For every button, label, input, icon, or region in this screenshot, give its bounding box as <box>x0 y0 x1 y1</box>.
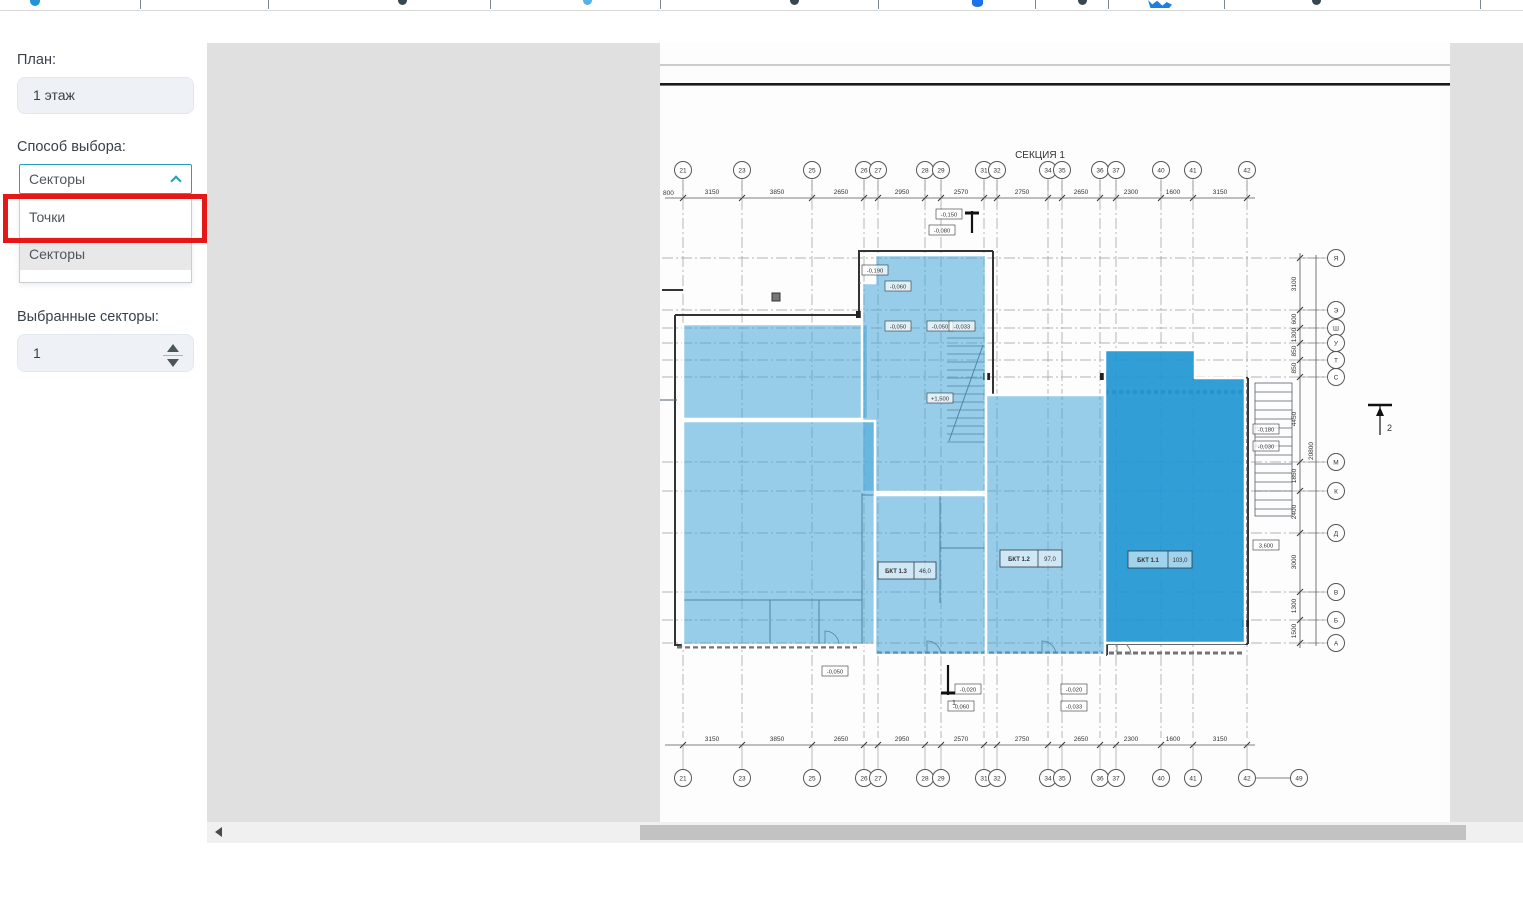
svg-text:41: 41 <box>1189 775 1197 782</box>
svg-text:2750: 2750 <box>1015 189 1030 196</box>
top-toolbar <box>0 0 1523 11</box>
selection-method-dropdown: ТочкиСекторы <box>19 196 192 283</box>
stepper-down-icon[interactable] <box>167 359 179 367</box>
svg-text:25: 25 <box>808 775 816 782</box>
svg-text:-0,050: -0,050 <box>827 670 843 676</box>
svg-text:2300: 2300 <box>1124 189 1139 196</box>
svg-text:-0,150: -0,150 <box>941 213 957 219</box>
svg-text:32: 32 <box>993 775 1001 782</box>
toolbar-separator <box>140 0 141 9</box>
toolbar-icon-fragment[interactable] <box>1148 0 1172 8</box>
svg-text:2650: 2650 <box>834 736 849 743</box>
svg-text:2750: 2750 <box>1015 736 1030 743</box>
svg-text:1: 1 <box>952 700 956 707</box>
svg-text:А: А <box>1334 640 1339 647</box>
svg-text:2300: 2300 <box>1124 736 1139 743</box>
svg-text:1500: 1500 <box>1291 623 1298 638</box>
selected-sectors-label: Выбранные секторы: <box>17 309 159 325</box>
svg-text:31: 31 <box>980 167 988 174</box>
horizontal-scrollbar[interactable] <box>207 822 1523 843</box>
svg-text:Д: Д <box>1334 530 1339 537</box>
svg-text:21: 21 <box>679 167 687 174</box>
svg-text:Б: Б <box>1334 617 1338 624</box>
svg-text:БКТ 1.3: БКТ 1.3 <box>885 569 907 575</box>
svg-text:25: 25 <box>808 167 816 174</box>
svg-text:2950: 2950 <box>895 736 910 743</box>
svg-text:-0,050: -0,050 <box>890 325 906 331</box>
svg-text:3,600: 3,600 <box>1259 544 1274 550</box>
toolbar-icon-fragment[interactable] <box>1312 0 1321 5</box>
svg-text:БКТ 1.2: БКТ 1.2 <box>1008 557 1030 563</box>
plan-viewport[interactable]: 3150385026502950257027502650230016003150… <box>207 43 1523 843</box>
svg-text:3150: 3150 <box>705 189 720 196</box>
dropdown-option-2[interactable]: Секторы <box>20 237 191 270</box>
svg-text:49: 49 <box>1295 775 1303 782</box>
svg-text:3850: 3850 <box>770 736 785 743</box>
svg-text:2650: 2650 <box>834 189 849 196</box>
svg-text:40: 40 <box>1157 775 1165 782</box>
svg-text:3150: 3150 <box>1213 736 1228 743</box>
svg-text:35: 35 <box>1058 167 1066 174</box>
svg-text:31: 31 <box>980 775 988 782</box>
svg-text:1600: 1600 <box>1166 736 1181 743</box>
svg-text:Т: Т <box>1334 357 1338 364</box>
svg-text:1300: 1300 <box>1291 327 1298 342</box>
selection-method-value: Секторы <box>29 171 85 187</box>
svg-text:850: 850 <box>1291 345 1298 356</box>
svg-text:35: 35 <box>1058 775 1066 782</box>
toolbar-icon-fragment[interactable] <box>398 0 407 5</box>
svg-text:-0,030: -0,030 <box>1258 445 1274 451</box>
svg-text:3150: 3150 <box>1213 189 1228 196</box>
svg-text:-0,180: -0,180 <box>1258 428 1274 434</box>
floor-plan-svg: 3150385026502950257027502650230016003150… <box>207 43 1523 822</box>
svg-text:-0,190: -0,190 <box>867 269 883 275</box>
svg-text:2570: 2570 <box>954 189 969 196</box>
svg-text:3850: 3850 <box>770 189 785 196</box>
svg-text:42: 42 <box>1243 775 1251 782</box>
scrollbar-thumb[interactable] <box>640 825 1466 840</box>
svg-text:41: 41 <box>1189 167 1197 174</box>
svg-text:34: 34 <box>1044 167 1052 174</box>
svg-text:-0,080: -0,080 <box>934 229 950 235</box>
sector-upper-left[interactable] <box>683 324 868 419</box>
svg-text:103,0: 103,0 <box>1172 558 1188 564</box>
sidebar: План: 1 этаж Способ выбора: Секторы Точк… <box>0 11 207 871</box>
svg-text:3000: 3000 <box>1291 554 1298 569</box>
toolbar-icon-fragment[interactable] <box>30 0 40 6</box>
toolbar-separator <box>660 0 661 9</box>
svg-text:42: 42 <box>1243 167 1251 174</box>
svg-text:4450: 4450 <box>1291 411 1298 426</box>
svg-text:2: 2 <box>1387 423 1392 433</box>
scrollbar-left-arrow-icon[interactable] <box>215 827 222 837</box>
svg-text:2650: 2650 <box>1074 189 1089 196</box>
svg-text:3100: 3100 <box>1291 276 1298 291</box>
plan-label: План: <box>17 52 56 68</box>
svg-text:-0,020: -0,020 <box>960 688 976 694</box>
svg-text:БКТ 1.1: БКТ 1.1 <box>1137 558 1159 564</box>
svg-text:29: 29 <box>937 167 945 174</box>
svg-text:26: 26 <box>860 775 868 782</box>
svg-text:-0,060: -0,060 <box>890 285 906 291</box>
toolbar-separator <box>1035 0 1036 9</box>
svg-text:2570: 2570 <box>954 736 969 743</box>
svg-text:37: 37 <box>1112 167 1120 174</box>
svg-text:2950: 2950 <box>895 189 910 196</box>
stepper-divider <box>163 355 183 356</box>
svg-text:28: 28 <box>921 167 929 174</box>
sector-center-right[interactable] <box>986 395 1105 655</box>
svg-text:26: 26 <box>860 167 868 174</box>
sector-right-selected[interactable] <box>1105 350 1245 643</box>
section-title: СЕКЦИЯ 1 <box>1015 150 1065 161</box>
svg-text:27: 27 <box>874 775 882 782</box>
svg-text:32: 32 <box>993 167 1001 174</box>
svg-text:1850: 1850 <box>1291 468 1298 483</box>
selection-method-select[interactable]: Секторы <box>19 164 192 194</box>
svg-text:+1,500: +1,500 <box>931 397 949 403</box>
toolbar-separator <box>490 0 491 9</box>
svg-text:97,0: 97,0 <box>1044 557 1056 563</box>
selection-method-label: Способ выбора: <box>17 139 126 155</box>
chevron-up-icon <box>170 175 181 186</box>
svg-text:29: 29 <box>937 775 945 782</box>
svg-text:2650: 2650 <box>1074 736 1089 743</box>
toolbar-separator <box>1224 0 1225 9</box>
toolbar-icon-fragment[interactable] <box>790 0 799 5</box>
svg-text:1300: 1300 <box>1291 598 1298 613</box>
sector-lower-left[interactable] <box>683 421 875 645</box>
toolbar-separator <box>1108 0 1109 9</box>
svg-text:23: 23 <box>738 167 746 174</box>
svg-text:3150: 3150 <box>705 736 720 743</box>
svg-text:28: 28 <box>921 775 929 782</box>
svg-text:20800: 20800 <box>1308 442 1315 460</box>
number-stepper <box>155 335 185 373</box>
svg-text:К: К <box>1334 488 1338 495</box>
toolbar-separator <box>878 0 879 9</box>
svg-text:В: В <box>1334 589 1338 596</box>
selected-sectors-value: 1 <box>33 345 41 361</box>
svg-text:1600: 1600 <box>1166 189 1181 196</box>
svg-text:800: 800 <box>663 190 674 197</box>
svg-text:Ш: Ш <box>1333 325 1339 332</box>
svg-text:Я: Я <box>1334 255 1339 262</box>
svg-text:46,0: 46,0 <box>919 569 931 575</box>
stepper-up-icon[interactable] <box>167 344 179 352</box>
svg-text:2400: 2400 <box>1291 504 1298 519</box>
svg-text:С: С <box>1334 374 1339 381</box>
toolbar-separator <box>268 0 269 9</box>
svg-text:М: М <box>1333 459 1338 466</box>
svg-text:-0,020: -0,020 <box>1066 688 1082 694</box>
svg-text:40: 40 <box>1157 167 1165 174</box>
svg-text:23: 23 <box>738 775 746 782</box>
dropdown-option-1[interactable]: Точки <box>20 197 191 237</box>
svg-text:-0,033: -0,033 <box>954 325 970 331</box>
toolbar-icon-fragment[interactable] <box>972 0 983 7</box>
svg-text:37: 37 <box>1112 775 1120 782</box>
toolbar-icon-fragment[interactable] <box>1078 0 1087 5</box>
sector-core[interactable] <box>862 255 986 492</box>
svg-text:21: 21 <box>679 775 687 782</box>
svg-text:27: 27 <box>874 167 882 174</box>
toolbar-separator <box>1480 0 1481 9</box>
svg-text:34: 34 <box>1044 775 1052 782</box>
dropdown-empty-option[interactable] <box>20 270 191 282</box>
svg-text:-0,033: -0,033 <box>1066 705 1082 711</box>
selected-sectors-input[interactable]: 1 <box>17 334 194 372</box>
svg-text:-0,050: -0,050 <box>932 325 948 331</box>
svg-text:36: 36 <box>1096 775 1104 782</box>
svg-text:600: 600 <box>1291 313 1298 324</box>
svg-text:36: 36 <box>1096 167 1104 174</box>
svg-text:850: 850 <box>1291 362 1298 373</box>
plan-select[interactable]: 1 этаж <box>17 77 194 114</box>
svg-text:Э: Э <box>1334 307 1339 314</box>
toolbar-icon-fragment[interactable] <box>583 0 592 5</box>
